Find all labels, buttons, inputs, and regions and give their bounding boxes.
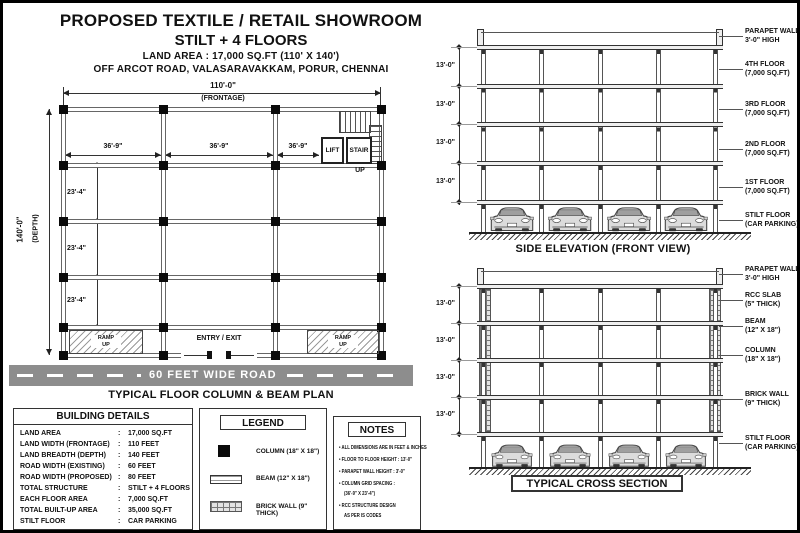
ramp-label-line1: RAMP [98, 335, 114, 341]
column-marker [271, 323, 280, 332]
column-swatch-icon [218, 445, 230, 457]
section-label: STILT FLOOR(CAR PARKING) [745, 434, 800, 452]
floor-height-label: 13'-0" [425, 300, 455, 307]
leader-line [719, 109, 743, 110]
column-marker [377, 217, 386, 226]
section-label: PARAPET WALL3'-0" HIGH [745, 265, 800, 283]
column-marker [271, 161, 280, 170]
rcc-slab [477, 284, 723, 289]
elevation-label: PARAPET WALL3'-0" HIGH [745, 27, 800, 45]
column-marker [59, 351, 68, 360]
page-subtitle: STILT + 4 FLOORS [41, 32, 441, 49]
column-marker [159, 351, 168, 360]
extension-line [451, 86, 479, 87]
extension-line [63, 87, 64, 105]
ramp-label-line1: RAMP [335, 335, 351, 341]
land-area-line: LAND AREA : 17,000 SQ.FT (110' X 140') [41, 51, 441, 62]
depth-text-label: (DEPTH) [33, 204, 40, 254]
frontage-text-label: (FRONTAGE) [113, 95, 333, 102]
floor-slab [477, 122, 723, 127]
extension-line [451, 323, 479, 324]
drawing-sheet: PROPOSED TEXTILE / RETAIL SHOWROOM STILT… [0, 0, 800, 533]
road-label: 60 FEET WIDE ROAD [141, 369, 285, 381]
page-title: PROPOSED TEXTILE / RETAIL SHOWROOM [41, 11, 441, 31]
bay-depth-label: 23'-4" [67, 297, 86, 304]
ramp-label: RAMP UP [91, 335, 121, 348]
floor-height-label: 13'-0" [425, 101, 455, 108]
bay-depth-label: 23'-4" [67, 245, 86, 252]
leader-line [719, 69, 743, 70]
bay-width-label: 36'-9" [273, 143, 323, 150]
stair-label: STAIR [348, 147, 370, 154]
leader-line [719, 443, 743, 444]
frontage-dim-line [63, 93, 381, 94]
entry-exit-label: ENTRY / EXIT [169, 335, 269, 342]
elevation-label: 1ST FLOOR(7,000 SQ.FT) [745, 178, 800, 196]
elevation-label: 3RD FLOOR(7,000 SQ.FT) [745, 100, 800, 118]
beam-line [161, 107, 166, 357]
column-marker [271, 273, 280, 282]
lift-room: LIFT [321, 137, 344, 164]
legend-item-label: BRICK WALL (9" THICK) [256, 503, 326, 517]
extension-line [380, 87, 381, 105]
leader-line [719, 355, 743, 356]
extension-line [451, 397, 479, 398]
note-line: AS PER IS CODES [344, 513, 431, 519]
column-marker [377, 161, 386, 170]
section-label: BEAM(12" X 18") [745, 317, 800, 335]
floor-height-label: 13'-0" [425, 139, 455, 146]
section-column [656, 289, 661, 468]
floor-height-label: 13'-0" [425, 178, 455, 185]
bay-depth-dim-line [97, 165, 98, 327]
car-icon [490, 444, 534, 467]
column-marker [377, 273, 386, 282]
brick-swatch-icon [210, 501, 242, 512]
lift-label: LIFT [323, 147, 342, 154]
note-line: COLUMN GRID SPACING : [339, 481, 426, 487]
bay-dim-line [165, 155, 273, 156]
rcc-slab [477, 358, 723, 363]
dim-arrow-icon [46, 349, 52, 355]
parapet-top-line [481, 32, 719, 33]
legend-title: LEGEND [220, 415, 306, 430]
car-icon [548, 444, 592, 467]
notes-title: NOTES [348, 422, 406, 437]
address-line: OFF ARCOT ROAD, VALASARAVAKKAM, PORUR, C… [41, 64, 441, 75]
car-icon [663, 206, 709, 232]
depth-dim-line [49, 109, 50, 355]
bay-width-label: 36'-9" [163, 143, 275, 150]
legend-item-label: BEAM (12" X 18") [256, 475, 310, 482]
column-marker [271, 217, 280, 226]
dim-arrow-icon [46, 109, 52, 115]
beam-line [61, 107, 66, 357]
column-marker [59, 323, 68, 332]
elevation-label: 4TH FLOOR(7,000 SQ.FT) [745, 60, 800, 78]
section-column [481, 289, 486, 468]
extension-line [451, 47, 479, 48]
leader-line [719, 149, 743, 150]
leader-line [719, 274, 743, 275]
section-label: COLUMN(18" X 18") [745, 346, 800, 364]
column-marker [59, 273, 68, 282]
rcc-slab [477, 432, 723, 437]
elevation-column [539, 50, 544, 233]
ramp-label-line2: UP [339, 342, 347, 348]
bay-depth-label: 23'-4" [67, 189, 86, 196]
bay-width-label: 36'-9" [63, 143, 163, 150]
note-line: FLOOR TO FLOOR HEIGHT : 13'-0" [339, 457, 426, 463]
ramp-up-right: RAMP UP [307, 330, 379, 354]
entry-door-line [227, 355, 254, 356]
entry-door-icon [207, 351, 212, 359]
notes-panel: NOTES ALL DIMENSIONS ARE IN FEET & INCHE… [333, 416, 421, 530]
floor-height-label: 13'-0" [425, 62, 455, 69]
note-line: PARAPET WALL HEIGHT : 3'-0" [339, 469, 426, 475]
car-icon [547, 206, 593, 232]
extension-line [451, 434, 479, 435]
floor-height-label: 13'-0" [425, 374, 455, 381]
column-marker [159, 217, 168, 226]
section-column [598, 289, 603, 468]
column-marker [159, 105, 168, 114]
legend-panel: LEGEND COLUMN (18" X 18") BEAM (12" X 18… [199, 408, 327, 530]
beam-line [61, 275, 383, 280]
stair-up-label: UP [345, 167, 375, 174]
cross-section-caption: TYPICAL CROSS SECTION [511, 475, 683, 492]
legend-item-label: COLUMN (18" X 18") [256, 448, 319, 455]
column-marker [377, 105, 386, 114]
floor-height-label: 13'-0" [425, 411, 455, 418]
column-marker [59, 217, 68, 226]
elevation-label: 2ND FLOOR(7,000 SQ.FT) [745, 140, 800, 158]
stair-flight-upper [339, 111, 371, 133]
building-details-table: BUILDING DETAILS LAND AREA:17,000 SQ.FT … [13, 408, 193, 530]
ramp-label-line2: UP [102, 342, 110, 348]
rcc-slab [477, 395, 723, 400]
frontage-dim-label: 110'-0" [113, 81, 333, 90]
ground-hatch [469, 234, 751, 240]
floor-height-label: 13'-0" [425, 337, 455, 344]
plan-caption: TYPICAL FLOOR COLUMN & BEAM PLAN [41, 389, 401, 401]
column-marker [271, 105, 280, 114]
beam-swatch-icon [210, 475, 242, 484]
floor-slab [477, 161, 723, 166]
elevation-column [656, 50, 661, 233]
leader-line [719, 399, 743, 400]
leader-line [719, 36, 743, 37]
stair-room: STAIR [346, 137, 372, 164]
depth-dim-label: 140'-0" [16, 205, 25, 255]
section-column [539, 289, 544, 468]
section-label: BRICK WALL(9" THICK) [745, 390, 800, 408]
beam-line [61, 107, 383, 112]
leader-line [719, 326, 743, 327]
column-marker [159, 161, 168, 170]
bay-dim-line [65, 155, 161, 156]
extension-line [451, 286, 479, 287]
leader-line [719, 300, 743, 301]
note-line: (36'-9" X 23'-4") [344, 491, 431, 497]
column-marker [271, 351, 280, 360]
elevation-column [598, 50, 603, 233]
leader-line [719, 220, 743, 221]
column-marker [159, 273, 168, 282]
floor-slab [477, 45, 723, 50]
parapet-top-line [481, 271, 719, 272]
floor-slab [477, 200, 723, 205]
beam-line [273, 107, 278, 357]
section-label: RCC SLAB(5" THICK) [745, 291, 800, 309]
car-icon [607, 444, 651, 467]
elevation-column [481, 50, 486, 233]
column-marker [159, 323, 168, 332]
floor-slab [477, 84, 723, 89]
ramp-label: RAMP UP [328, 335, 358, 348]
car-icon [606, 206, 652, 232]
column-marker [59, 105, 68, 114]
section-column [713, 289, 718, 468]
dim-arrow-icon [313, 152, 319, 158]
entry-door-icon [226, 351, 231, 359]
ramp-up-left: RAMP UP [69, 330, 143, 354]
column-marker [59, 161, 68, 170]
side-elevation-caption: SIDE ELEVATION (FRONT VIEW) [473, 243, 733, 255]
elevation-label: STILT FLOOR(CAR PARKING) [745, 211, 800, 229]
car-icon [489, 206, 535, 232]
car-icon [664, 444, 708, 467]
rcc-slab [477, 321, 723, 326]
extension-line [451, 163, 479, 164]
building-details-title: BUILDING DETAILS [14, 411, 192, 425]
extension-line [451, 124, 479, 125]
elevation-column [713, 50, 718, 233]
extension-line [451, 202, 479, 203]
leader-line [719, 187, 743, 188]
beam-line [61, 219, 383, 224]
extension-line [451, 360, 479, 361]
note-line: RCC STRUCTURE DESIGN [339, 503, 426, 509]
note-line: ALL DIMENSIONS ARE IN FEET & INCHES [339, 445, 426, 451]
